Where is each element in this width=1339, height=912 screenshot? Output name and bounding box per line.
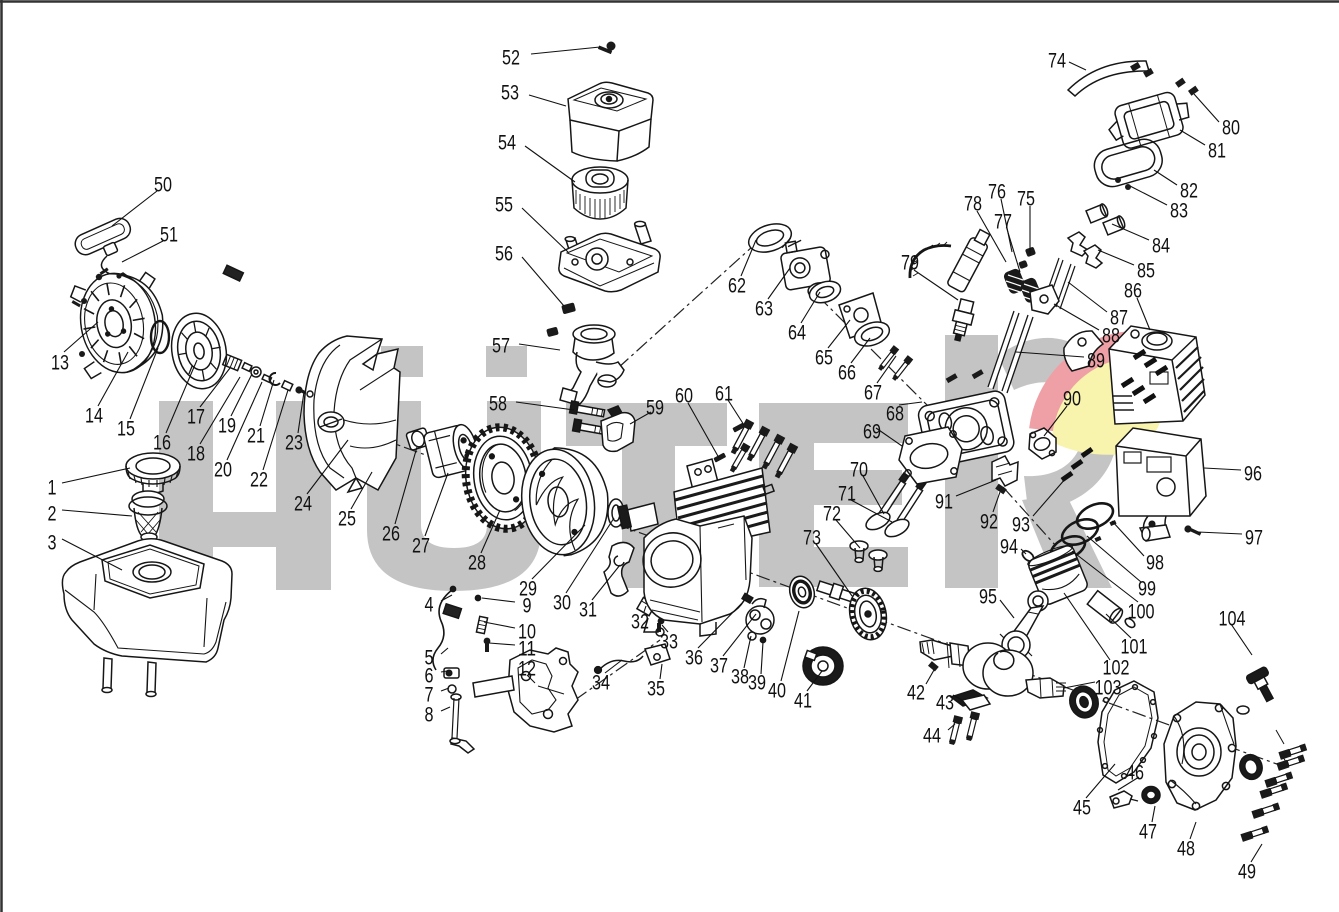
svg-text:15: 15 (117, 417, 135, 441)
svg-text:30: 30 (553, 591, 571, 615)
svg-text:42: 42 (907, 681, 925, 705)
svg-text:68: 68 (886, 402, 904, 426)
svg-text:33: 33 (660, 630, 678, 654)
svg-text:63: 63 (755, 297, 773, 321)
svg-text:89: 89 (1087, 349, 1105, 373)
svg-text:57: 57 (492, 334, 510, 358)
svg-text:54: 54 (498, 131, 516, 155)
svg-text:81: 81 (1208, 139, 1226, 163)
svg-text:31: 31 (579, 598, 597, 622)
svg-text:76: 76 (988, 180, 1006, 204)
svg-text:28: 28 (468, 551, 486, 575)
svg-text:77: 77 (994, 210, 1012, 234)
svg-text:12: 12 (518, 657, 536, 681)
svg-text:104: 104 (1219, 607, 1246, 631)
svg-text:29: 29 (519, 577, 537, 601)
svg-text:83: 83 (1170, 199, 1188, 223)
svg-text:56: 56 (495, 242, 513, 266)
svg-text:16: 16 (153, 431, 171, 455)
svg-text:51: 51 (160, 223, 178, 247)
svg-text:20: 20 (214, 458, 232, 482)
svg-text:58: 58 (489, 392, 507, 416)
svg-text:67: 67 (864, 381, 882, 405)
svg-text:79: 79 (901, 251, 919, 275)
svg-text:95: 95 (979, 585, 997, 609)
svg-text:80: 80 (1222, 116, 1240, 140)
svg-text:13: 13 (51, 351, 69, 375)
svg-text:39: 39 (748, 671, 766, 695)
svg-text:103: 103 (1095, 676, 1122, 700)
svg-text:61: 61 (715, 382, 733, 406)
svg-text:34: 34 (592, 671, 610, 695)
svg-text:52: 52 (502, 46, 520, 70)
svg-text:64: 64 (788, 321, 806, 345)
svg-text:47: 47 (1139, 820, 1157, 844)
svg-text:1: 1 (48, 476, 57, 500)
svg-text:49: 49 (1238, 860, 1256, 884)
svg-text:99: 99 (1138, 577, 1156, 601)
svg-text:78: 78 (964, 192, 982, 216)
svg-text:69: 69 (863, 420, 881, 444)
svg-text:32: 32 (631, 610, 649, 634)
svg-text:38: 38 (731, 665, 749, 689)
svg-text:66: 66 (838, 361, 856, 385)
svg-text:100: 100 (1128, 600, 1155, 624)
svg-text:24: 24 (294, 492, 312, 516)
svg-text:19: 19 (218, 414, 236, 438)
svg-text:93: 93 (1012, 513, 1030, 537)
svg-text:70: 70 (850, 458, 868, 482)
svg-text:98: 98 (1146, 551, 1164, 575)
svg-text:73: 73 (803, 526, 821, 550)
svg-text:14: 14 (85, 404, 103, 428)
svg-text:2: 2 (48, 502, 57, 526)
svg-text:96: 96 (1244, 462, 1262, 486)
svg-text:8: 8 (425, 703, 434, 727)
svg-text:88: 88 (1102, 324, 1120, 348)
svg-text:26: 26 (382, 522, 400, 546)
svg-text:91: 91 (935, 490, 953, 514)
svg-text:72: 72 (823, 502, 841, 526)
svg-text:50: 50 (154, 173, 172, 197)
svg-text:46: 46 (1126, 761, 1144, 785)
svg-text:45: 45 (1073, 796, 1091, 820)
svg-text:17: 17 (187, 405, 205, 429)
svg-text:59: 59 (646, 396, 664, 420)
svg-text:36: 36 (685, 646, 703, 670)
svg-text:44: 44 (923, 724, 941, 748)
svg-text:3: 3 (48, 531, 57, 555)
svg-text:75: 75 (1017, 187, 1035, 211)
svg-text:84: 84 (1152, 234, 1170, 258)
svg-text:65: 65 (815, 346, 833, 370)
svg-text:43: 43 (936, 691, 954, 715)
svg-text:62: 62 (728, 274, 746, 298)
svg-text:18: 18 (187, 442, 205, 466)
svg-text:74: 74 (1048, 49, 1066, 73)
svg-text:4: 4 (425, 593, 434, 617)
svg-text:48: 48 (1177, 837, 1195, 861)
svg-text:55: 55 (495, 193, 513, 217)
svg-text:60: 60 (675, 384, 693, 408)
svg-text:53: 53 (501, 81, 519, 105)
svg-text:40: 40 (768, 679, 786, 703)
svg-text:25: 25 (338, 507, 356, 531)
svg-text:37: 37 (710, 654, 728, 678)
svg-text:41: 41 (794, 689, 812, 713)
svg-text:35: 35 (647, 677, 665, 701)
svg-text:21: 21 (247, 424, 265, 448)
svg-text:22: 22 (250, 468, 268, 492)
svg-text:27: 27 (412, 534, 430, 558)
svg-text:94: 94 (1000, 535, 1018, 559)
svg-text:23: 23 (285, 431, 303, 455)
svg-text:92: 92 (980, 510, 998, 534)
svg-text:97: 97 (1245, 526, 1263, 550)
svg-text:86: 86 (1124, 279, 1142, 303)
svg-text:90: 90 (1063, 387, 1081, 411)
